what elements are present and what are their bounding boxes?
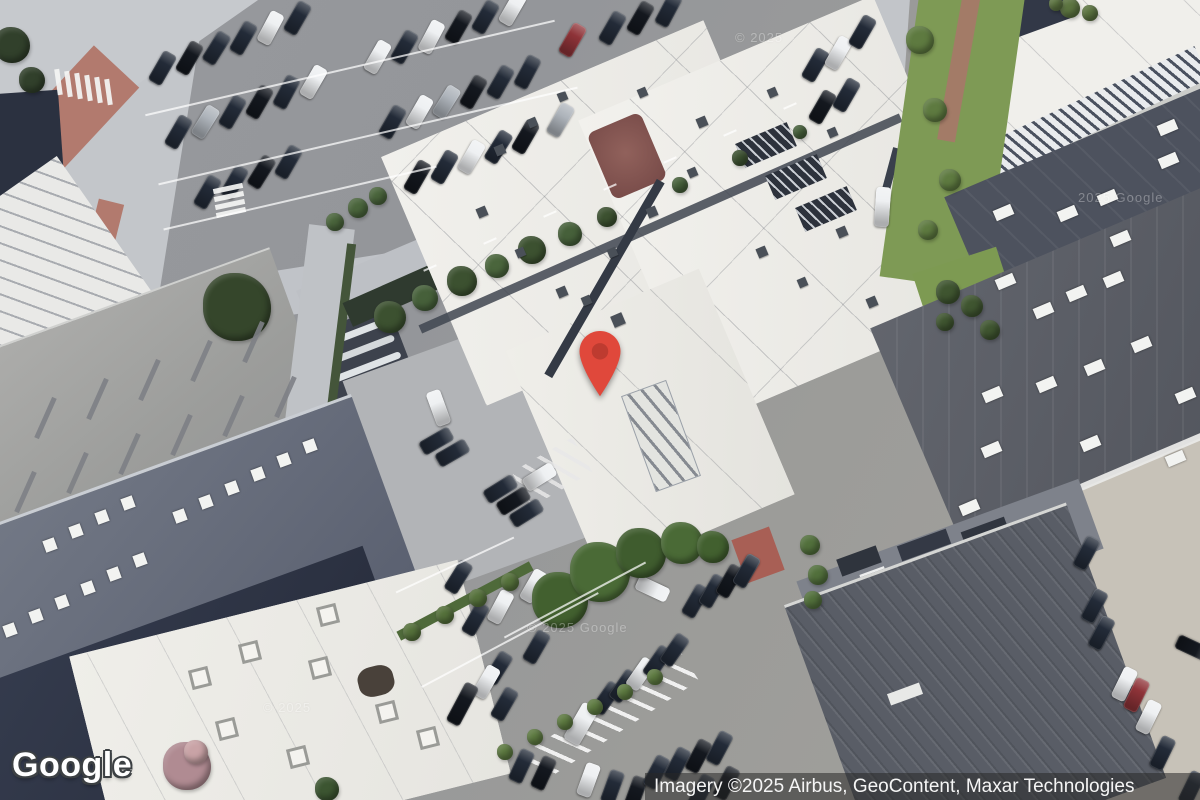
tree [808, 565, 828, 585]
car [377, 104, 407, 141]
road-marking [483, 237, 497, 245]
skylight [120, 495, 135, 510]
car [282, 0, 312, 36]
roof-vent [222, 395, 244, 437]
tree [469, 589, 487, 607]
road-marking [158, 87, 577, 186]
skylight [1109, 229, 1131, 247]
road-marking [145, 20, 555, 116]
skylight [1065, 284, 1087, 302]
tree [672, 177, 688, 193]
roof-unit [755, 245, 768, 258]
car [458, 74, 488, 111]
skylight [54, 594, 69, 609]
tree [184, 740, 208, 764]
tree [1060, 0, 1080, 18]
road-marking [543, 210, 557, 218]
car [489, 686, 519, 723]
skylight [958, 498, 980, 516]
tree [557, 714, 573, 730]
skylight [1056, 204, 1078, 222]
skylight [980, 440, 1002, 458]
car [575, 761, 601, 798]
tree [961, 295, 983, 317]
tree [793, 125, 807, 139]
skylight-frame [286, 745, 310, 769]
tree [497, 744, 513, 760]
car [174, 40, 204, 77]
car [597, 10, 627, 47]
skylight-frame [215, 717, 239, 741]
car [255, 9, 284, 46]
crosswalk-stripe [64, 71, 73, 97]
car [497, 0, 527, 27]
car [545, 102, 575, 139]
skylight [68, 523, 83, 538]
car [389, 29, 419, 66]
car [847, 14, 877, 51]
road-marking [663, 156, 677, 164]
car [470, 0, 500, 35]
tree [1082, 5, 1098, 21]
roof-vent [66, 452, 88, 494]
tree [597, 207, 617, 227]
skylight [28, 608, 43, 623]
car [425, 389, 451, 428]
car [512, 53, 541, 90]
crosswalk-stripe [94, 77, 103, 103]
roof-vent [86, 378, 108, 420]
crosswalk-stripe [74, 73, 83, 99]
car [1173, 634, 1200, 662]
skylight [1102, 270, 1124, 288]
tree [587, 699, 603, 715]
roof-unit [835, 225, 848, 238]
roof-unit [865, 295, 878, 308]
car [402, 159, 432, 196]
tree [348, 198, 368, 218]
roof-unit [686, 166, 698, 178]
map-canvas[interactable]: © 20252025 Google© 2025© 2025 Google Goo… [0, 0, 1200, 800]
tree [374, 301, 406, 333]
car [298, 64, 328, 101]
tree [369, 187, 387, 205]
skylight [172, 508, 187, 523]
car [653, 0, 682, 29]
tree [558, 222, 582, 246]
car [625, 0, 655, 36]
car [599, 768, 625, 800]
skylight [1083, 358, 1105, 376]
attribution-bar: Imagery ©2025 Airbus, GeoContent, Maxar … [645, 773, 1200, 800]
tree [936, 280, 960, 304]
tree [923, 98, 947, 122]
car [485, 588, 514, 625]
road-marking [423, 264, 437, 272]
skylight [276, 452, 291, 467]
tree [0, 27, 30, 63]
skylight-frame [188, 666, 212, 690]
skylight-frame [308, 656, 332, 680]
tree [436, 606, 454, 624]
roof-unit [636, 86, 648, 98]
tree [485, 254, 509, 278]
skylight-frame [316, 603, 340, 627]
car [147, 50, 177, 87]
tree [315, 777, 339, 800]
imagery-watermark: © 2025 Google [527, 620, 628, 635]
roof-vent [34, 397, 56, 439]
roof-unit [606, 246, 618, 258]
car [873, 187, 891, 228]
tree [19, 67, 45, 93]
skylight [994, 272, 1016, 290]
roof-vent [170, 414, 192, 456]
roof-unit [475, 205, 488, 218]
skylight-frame [375, 700, 399, 724]
skylight [94, 509, 109, 524]
crosswalk-stripe [104, 79, 113, 105]
skylight [132, 552, 147, 567]
skylight [106, 566, 121, 581]
roof-unit [580, 294, 592, 306]
tree [616, 528, 666, 578]
car [217, 94, 247, 131]
car [807, 89, 837, 126]
roof-unit [766, 86, 778, 98]
skylight [1164, 449, 1186, 467]
imagery-watermark: 2025 Google [1078, 190, 1163, 205]
car [445, 681, 479, 727]
tree [980, 320, 1000, 340]
tree [403, 623, 421, 641]
skylight [302, 438, 317, 453]
tree [936, 313, 954, 331]
roof-vent [190, 340, 212, 382]
tree [804, 591, 822, 609]
location-pin[interactable] [577, 328, 623, 400]
car [485, 64, 515, 101]
tree [527, 729, 543, 745]
roof-unit [610, 312, 626, 328]
skylight [250, 466, 265, 481]
skylight [1157, 151, 1179, 169]
roof-unit [645, 205, 658, 218]
skylight [224, 480, 239, 495]
crosswalk-stripe [84, 75, 93, 101]
pin-body-icon [579, 331, 620, 396]
car [456, 139, 486, 176]
roof-unit [826, 126, 838, 138]
tree [918, 220, 938, 240]
attribution-text: Imagery ©2025 Airbus, GeoContent, Maxar … [654, 776, 1134, 797]
tree [906, 26, 934, 54]
roof-vent [14, 471, 36, 513]
tree [732, 150, 748, 166]
car [557, 22, 587, 59]
car [362, 39, 392, 76]
pin-inner-circle-icon [592, 343, 608, 359]
car [1148, 734, 1176, 771]
road-marking [783, 102, 797, 110]
tree [939, 169, 961, 191]
skylight [1130, 335, 1152, 353]
roof-vent [138, 359, 160, 401]
skylight [1079, 434, 1101, 452]
imagery-watermark: © 2025 [263, 700, 311, 715]
roof-unit [555, 285, 568, 298]
car [163, 114, 193, 151]
crosswalk-stripe [54, 69, 63, 95]
car [228, 20, 258, 57]
tree [647, 669, 663, 685]
skylight [80, 580, 95, 595]
tree [800, 535, 820, 555]
skylight [2, 622, 17, 637]
road-marking [723, 129, 737, 137]
car [529, 754, 557, 791]
skylight [1032, 301, 1054, 319]
roof-unit [796, 276, 808, 288]
car [521, 462, 558, 493]
car [201, 30, 232, 67]
skylight [1174, 386, 1196, 404]
tree [412, 285, 438, 311]
skylight-frame [238, 640, 262, 664]
tree [447, 266, 477, 296]
skylight [42, 537, 57, 552]
google-logo[interactable]: Google [12, 746, 132, 785]
skylight [981, 385, 1003, 403]
car [1071, 534, 1100, 571]
skylight [198, 494, 213, 509]
skylight [1035, 375, 1057, 393]
imagery-watermark: © 2025 [735, 30, 783, 45]
tree [697, 531, 729, 563]
roof-vent [274, 376, 296, 418]
tree [326, 213, 344, 231]
tree [617, 684, 633, 700]
tree [501, 573, 519, 591]
roof-vent [118, 433, 140, 475]
skylight [992, 203, 1014, 221]
road-marking [603, 183, 617, 191]
car [190, 104, 221, 141]
roof-unit [695, 115, 708, 128]
car [273, 144, 303, 181]
skylight [1156, 118, 1178, 136]
car [633, 575, 670, 603]
skylight-frame [416, 726, 440, 750]
